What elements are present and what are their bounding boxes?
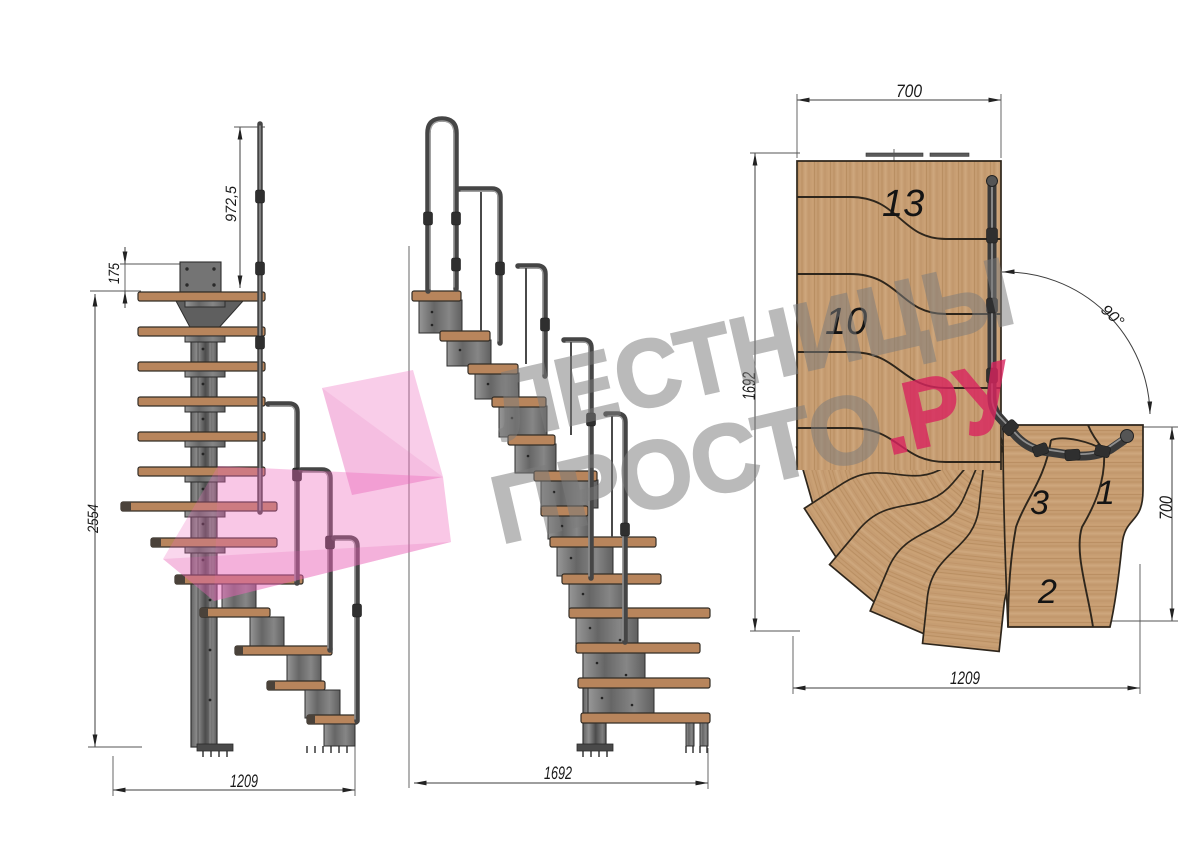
svg-text:700: 700 bbox=[1156, 496, 1176, 520]
svg-text:1209: 1209 bbox=[230, 771, 258, 791]
svg-text:972,5: 972,5 bbox=[223, 185, 240, 222]
svg-text:13: 13 bbox=[882, 183, 924, 225]
svg-text:2554: 2554 bbox=[85, 504, 102, 534]
svg-text:1209: 1209 bbox=[950, 668, 980, 688]
svg-text:2: 2 bbox=[1037, 573, 1057, 611]
svg-text:3: 3 bbox=[1030, 484, 1049, 522]
svg-text:700: 700 bbox=[896, 81, 922, 101]
svg-text:1692: 1692 bbox=[544, 763, 572, 783]
svg-text:175: 175 bbox=[106, 262, 123, 284]
svg-text:1: 1 bbox=[1096, 474, 1115, 512]
